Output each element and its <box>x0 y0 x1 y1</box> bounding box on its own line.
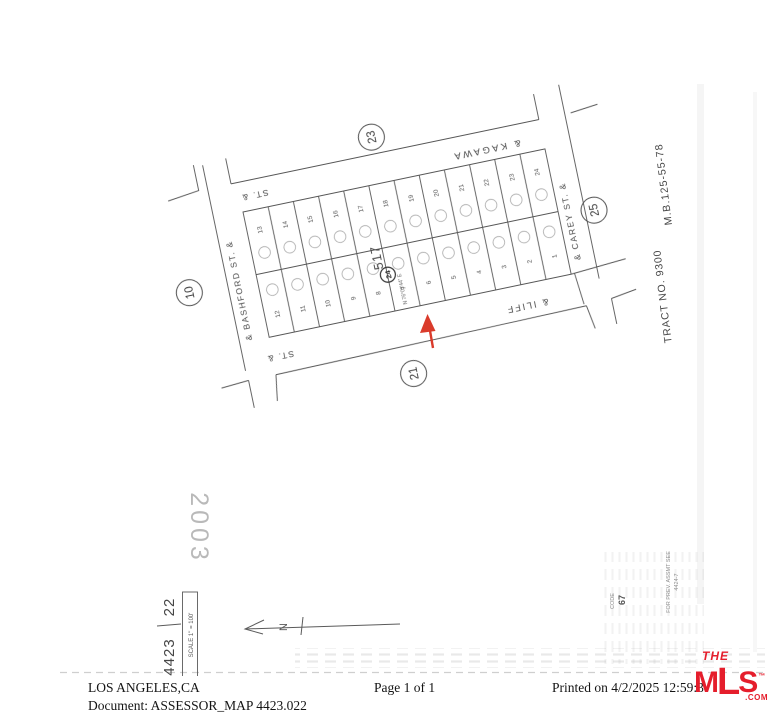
lot-number: 3 <box>501 264 509 269</box>
lot-number: 18 <box>382 199 390 208</box>
lot-number: 20 <box>433 188 441 197</box>
parcel-circle <box>492 235 506 249</box>
tract-number: TRACT NO. 9300 <box>651 249 674 344</box>
lot-number: 15 <box>307 215 315 224</box>
sheet-book-number: 4423 <box>161 638 178 675</box>
lot-number: 1 <box>551 253 559 258</box>
lot-number: 12 <box>274 309 282 318</box>
prev-assmt-note: FOR PREV. ASSMT SEE <box>666 551 672 613</box>
lot-number: 24 <box>533 167 541 176</box>
assessor-map-svg: 2003 1314151 <box>0 0 772 676</box>
street-label-kagawa-st: ST. & <box>240 187 269 202</box>
parcel-circle <box>442 246 456 260</box>
logo-tm: ™ <box>758 673 765 680</box>
sheet-ref-right: 25 <box>588 202 602 217</box>
year-stamp: 2003 <box>185 492 213 564</box>
parcel-circle <box>316 272 330 286</box>
footer-location: LOS ANGELES,CA <box>88 680 200 696</box>
parcel-circle <box>416 251 430 265</box>
lot-number: 6 <box>425 280 433 285</box>
sheet-ref-bottom: 21 <box>407 366 421 381</box>
parcel-circle <box>484 198 498 212</box>
street-label-kagawa: & KAGAWA <box>451 137 522 162</box>
lot-number: 5 <box>451 274 459 279</box>
subject-parcel-arrow <box>420 314 436 348</box>
footer-document: Document: ASSESSOR_MAP 4423.022 <box>88 698 307 714</box>
map-book-ref: M.B.125-55-78 <box>653 143 675 226</box>
parcel-circle <box>358 225 372 239</box>
code-label: CODE <box>610 593 616 609</box>
street-label-carey: & CAREY ST. & <box>557 182 583 262</box>
lot-number: 4 <box>476 269 484 274</box>
north-label: N <box>278 623 290 631</box>
parcel-circle <box>265 283 279 297</box>
logo-m: M <box>694 668 719 698</box>
parcel-circle <box>283 240 297 254</box>
prev-assmt-ref: 4424-7 <box>674 573 680 590</box>
parcel-circle <box>384 219 398 233</box>
parcel-circle <box>291 278 305 292</box>
footer-page-info: Page 1 of 1 <box>374 680 435 696</box>
lot-number: 14 <box>282 220 290 229</box>
footer-printed: Printed on 4/2/2025 12:59:3 <box>552 680 704 696</box>
street-label-iliff-st: ST. & <box>266 349 295 364</box>
parcel-circle <box>542 225 556 239</box>
parcel-circle <box>434 209 448 223</box>
parcel-circle <box>467 241 481 255</box>
lot-number: 17 <box>357 204 365 213</box>
parcel-circle <box>308 235 322 249</box>
lot-number: 10 <box>324 299 332 308</box>
lot-number: 13 <box>256 225 264 234</box>
sheet-ref-left: 10 <box>183 285 197 300</box>
parcel-circle <box>509 193 523 207</box>
parcel-circle <box>341 267 355 281</box>
parcel-circle <box>333 230 347 244</box>
themls-logo: THE MLS™ .COM <box>694 650 768 704</box>
block-circle-number: 24 <box>383 269 394 280</box>
street-label-bashford: & BASHFORD ST. & <box>224 240 255 342</box>
parcel-circle <box>535 188 549 202</box>
sheet-ref-circles <box>150 80 634 430</box>
lot-number: 2 <box>526 259 534 264</box>
sheet-ref-top: 23 <box>365 129 379 144</box>
lot-number: 19 <box>407 194 415 203</box>
sheet-page-number: 22 <box>161 598 178 617</box>
scale-note: SCALE 1" = 100' <box>189 613 195 658</box>
lot-number: 8 <box>375 290 383 295</box>
lot-number: 9 <box>350 295 358 300</box>
parcel-circle <box>391 256 405 270</box>
lot-number: 16 <box>332 209 340 218</box>
sheet-index: 4423 22 SCALE 1" = 100' <box>157 592 198 676</box>
lot-number: 11 <box>299 304 307 312</box>
assessor-map-page: { "document": { "location": "LOS ANGELES… <box>0 0 772 720</box>
parcel-map: 131415161718192021222324121110987654321 … <box>150 78 646 431</box>
code-value: 67 <box>617 595 627 605</box>
parcel-circle <box>409 214 423 228</box>
parcel-circle <box>459 204 473 218</box>
parcel-circle <box>517 230 531 244</box>
street-label-iliff: & ILIFF <box>505 297 550 316</box>
parcel-circle <box>258 246 272 260</box>
lot-number: 21 <box>458 183 466 192</box>
lot-number: 22 <box>483 178 491 187</box>
logo-l: L <box>717 663 740 701</box>
lot-number: 23 <box>508 173 516 182</box>
north-arrow <box>245 617 400 635</box>
